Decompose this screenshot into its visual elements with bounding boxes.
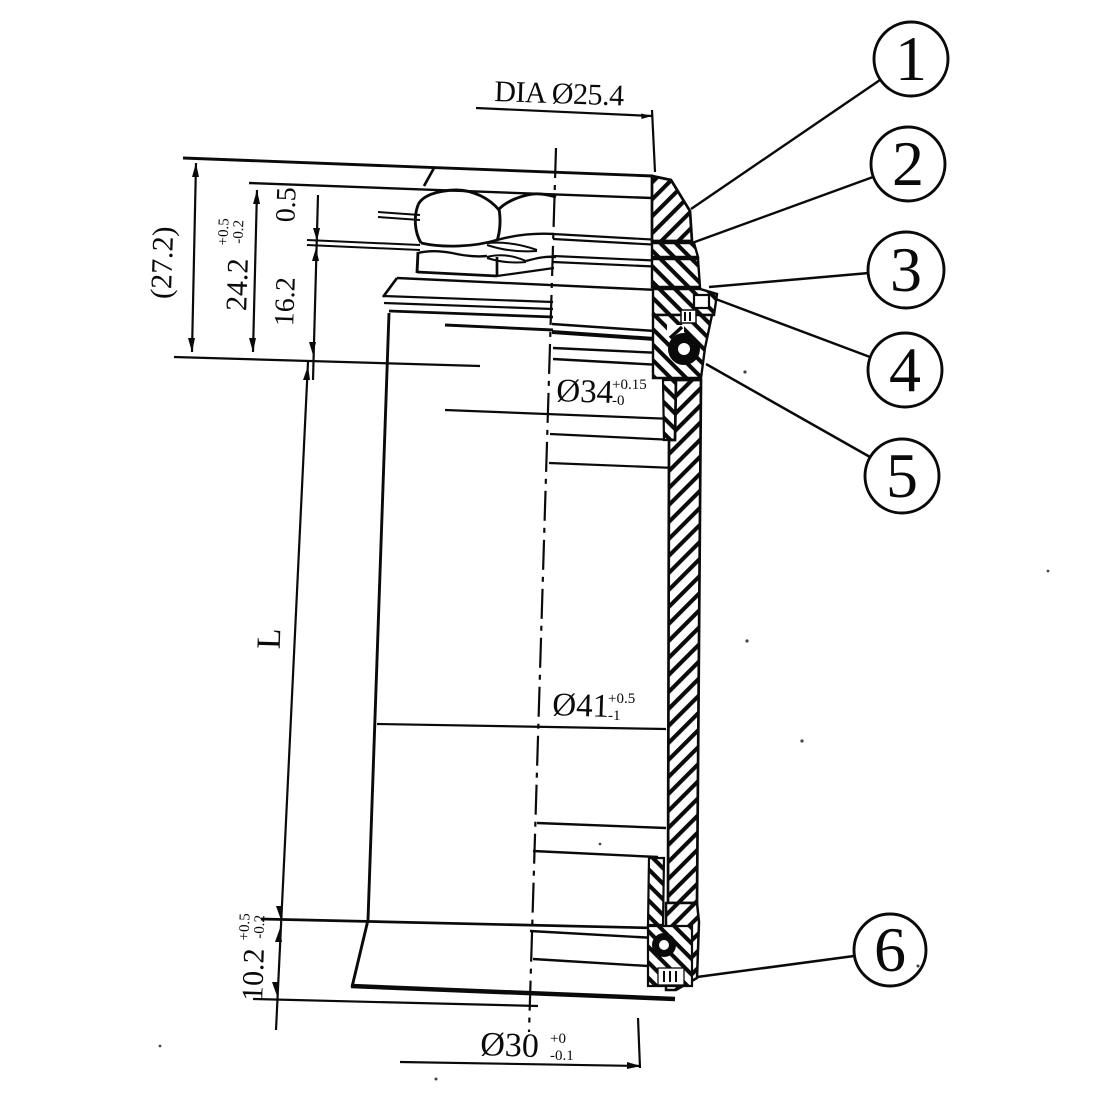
svg-text:-1: -1	[608, 708, 621, 724]
svg-text:-0.2: -0.2	[231, 220, 248, 244]
svg-text:+0: +0	[550, 1031, 566, 1047]
svg-text:DIA Ø25.4: DIA Ø25.4	[494, 75, 625, 113]
svg-text:Ø41: Ø41	[552, 687, 610, 725]
svg-text:10.2: 10.2	[236, 948, 271, 1002]
svg-text:16.2: 16.2	[269, 277, 302, 327]
svg-text:0.5: 0.5	[270, 187, 302, 223]
svg-text:1: 1	[895, 23, 927, 94]
svg-text:+0.5: +0.5	[608, 691, 635, 707]
svg-text:Ø30: Ø30	[480, 1026, 540, 1065]
svg-text:(27.2): (27.2)	[145, 226, 181, 300]
svg-text:6: 6	[874, 914, 906, 985]
svg-text:3: 3	[890, 234, 922, 305]
svg-text:4: 4	[889, 334, 921, 405]
svg-text:L: L	[251, 628, 289, 650]
svg-text:24.2: 24.2	[220, 258, 255, 312]
svg-text:-0.1: -0.1	[550, 1048, 574, 1064]
svg-text:+0.15: +0.15	[612, 377, 647, 393]
svg-text:2: 2	[892, 128, 924, 199]
svg-text:-0: -0	[612, 393, 625, 409]
svg-text:Ø34: Ø34	[556, 373, 614, 411]
svg-text:5: 5	[886, 440, 918, 511]
